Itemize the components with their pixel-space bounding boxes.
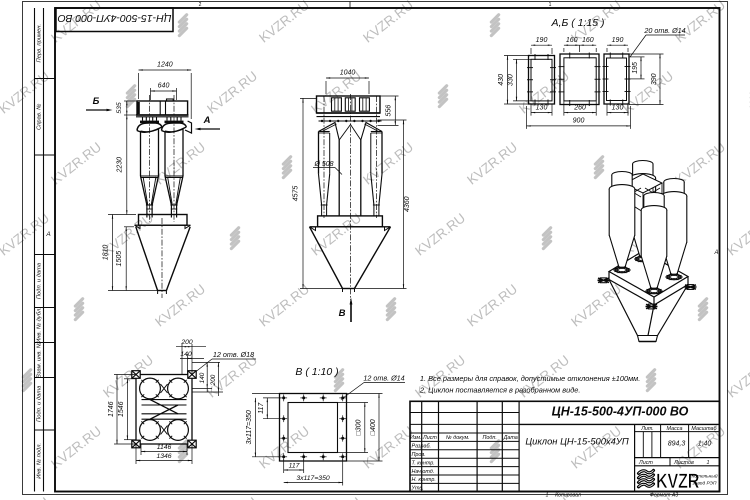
svg-text:□400: □400 xyxy=(370,419,377,435)
svg-text:В: В xyxy=(339,308,346,319)
svg-text:1146: 1146 xyxy=(157,444,172,451)
svg-text:А: А xyxy=(203,115,211,126)
svg-text:Разраб.: Разраб. xyxy=(412,444,432,450)
svg-text:Пров.: Пров. xyxy=(412,452,426,458)
svg-text:Взам. инв. №: Взам. инв. № xyxy=(37,342,43,378)
svg-text:1:40: 1:40 xyxy=(698,441,712,448)
svg-text:2230: 2230 xyxy=(116,157,123,174)
svg-text:Подп.: Подп. xyxy=(483,435,497,441)
svg-text:Инв. № дубл.: Инв. № дубл. xyxy=(37,307,43,343)
svg-text:Справ. №: Справ. № xyxy=(37,104,43,130)
svg-text:1040: 1040 xyxy=(340,70,356,77)
svg-text:640: 640 xyxy=(158,83,170,90)
svg-text:260: 260 xyxy=(573,105,586,112)
svg-text:Лист: Лист xyxy=(638,460,653,466)
svg-text:Лист: Лист xyxy=(422,435,437,441)
svg-text:535: 535 xyxy=(116,102,123,114)
svg-text:Ø 508: Ø 508 xyxy=(313,161,333,168)
svg-text:160: 160 xyxy=(566,37,578,44)
svg-text:Формат А3: Формат А3 xyxy=(650,493,678,499)
svg-text:3x117=350: 3x117=350 xyxy=(246,410,253,444)
svg-text:А: А xyxy=(45,231,50,238)
svg-text:ЦН-15-500-4УП-000 ВО: ЦН-15-500-4УП-000 ВО xyxy=(552,405,689,419)
svg-text:Листов: Листов xyxy=(673,460,694,466)
svg-text:20 отв. Ø14: 20 отв. Ø14 xyxy=(643,26,685,35)
svg-text:330: 330 xyxy=(507,74,514,86)
svg-text:1: 1 xyxy=(549,2,552,8)
svg-text:4575: 4575 xyxy=(293,186,300,202)
svg-text:190: 190 xyxy=(612,37,624,44)
svg-text:Т. контр.: Т. контр. xyxy=(412,460,435,466)
svg-text:556: 556 xyxy=(385,105,392,117)
svg-text:1: 1 xyxy=(707,460,710,466)
svg-text:1810: 1810 xyxy=(103,245,110,261)
svg-text:117: 117 xyxy=(258,402,265,414)
svg-text:Н. контр.: Н. контр. xyxy=(412,477,436,483)
svg-text:ЦН-15-500-4УП-000 ВО: ЦН-15-500-4УП-000 ВО xyxy=(58,12,172,24)
svg-text:Изм.: Изм. xyxy=(410,435,422,441)
svg-text:Дата: Дата xyxy=(503,435,518,441)
svg-text:900: 900 xyxy=(573,118,585,125)
svg-text:В ( 1:10 ): В ( 1:10 ) xyxy=(295,366,338,378)
svg-text:117: 117 xyxy=(289,463,300,470)
svg-text:□300: □300 xyxy=(356,419,363,435)
svg-text:2: 2 xyxy=(199,2,202,8)
svg-text:130: 130 xyxy=(612,105,624,112)
svg-text:Подп. и дата: Подп. и дата xyxy=(37,385,43,422)
svg-text:А,Б ( 1:15 ): А,Б ( 1:15 ) xyxy=(551,17,605,29)
svg-text:Нач.отд.: Нач.отд. xyxy=(412,469,435,475)
svg-text:Котельный: Котельный xyxy=(691,473,717,480)
svg-text:4360: 4360 xyxy=(404,196,411,212)
svg-text:140: 140 xyxy=(199,372,206,383)
svg-text:1240: 1240 xyxy=(157,62,173,69)
svg-text:200: 200 xyxy=(210,374,217,386)
svg-text:Инв. № подл.: Инв. № подл. xyxy=(37,443,43,479)
svg-text:Масштаб: Масштаб xyxy=(691,426,717,432)
svg-text:130: 130 xyxy=(536,105,548,112)
svg-text:390: 390 xyxy=(651,73,658,85)
svg-text:140: 140 xyxy=(180,351,192,358)
svg-text:195: 195 xyxy=(632,62,639,74)
svg-text:Б: Б xyxy=(93,96,100,107)
svg-text:190: 190 xyxy=(536,37,548,44)
svg-text:№ докум.: № докум. xyxy=(446,435,470,441)
svg-text:2. Циклон поставляется в разоб: 2. Циклон поставляется в разобранном вид… xyxy=(419,386,581,395)
svg-text:894,3: 894,3 xyxy=(668,441,686,448)
svg-text:160: 160 xyxy=(582,37,594,44)
svg-text:Подп. и дата: Подп. и дата xyxy=(37,262,43,299)
svg-text:Перв. примен.: Перв. примен. xyxy=(37,24,43,63)
svg-text:А: А xyxy=(713,250,718,256)
svg-text:12 отв. Ø18: 12 отв. Ø18 xyxy=(213,350,254,359)
svg-text:1505: 1505 xyxy=(116,251,123,267)
svg-text:200: 200 xyxy=(180,339,193,346)
svg-text:1746: 1746 xyxy=(108,401,115,417)
svg-text:Утв.: Утв. xyxy=(411,486,424,492)
svg-text:завод РЭП: завод РЭП xyxy=(692,481,717,487)
svg-text:Копировал: Копировал xyxy=(555,493,581,499)
svg-text:12 отв. Ø14: 12 отв. Ø14 xyxy=(363,374,404,383)
svg-text:1346: 1346 xyxy=(156,453,171,460)
svg-text:1. Все размеры для справок, до: 1. Все размеры для справок, допустимые о… xyxy=(420,374,640,383)
svg-text:1: 1 xyxy=(546,493,549,499)
svg-text:Циклон ЦН-15-500х4УП: Циклон ЦН-15-500х4УП xyxy=(525,436,629,447)
svg-text:Масса: Масса xyxy=(667,426,683,432)
svg-text:430: 430 xyxy=(498,74,505,86)
svg-text:Лит.: Лит. xyxy=(640,426,654,432)
svg-text:1546: 1546 xyxy=(118,401,125,417)
svg-text:3x117=350: 3x117=350 xyxy=(296,475,330,482)
